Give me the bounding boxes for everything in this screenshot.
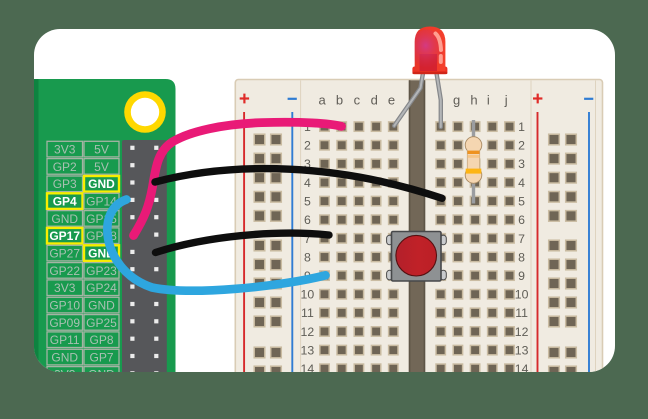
svg-text:GND: GND [88,298,115,312]
svg-text:1: 1 [518,120,525,134]
svg-text:GP22: GP22 [49,264,80,278]
svg-text:2: 2 [304,139,311,153]
svg-text:GP11: GP11 [50,333,80,347]
svg-text:5: 5 [518,195,525,209]
svg-text:10: 10 [515,288,529,302]
svg-text:i: i [487,93,490,108]
svg-text:GP2: GP2 [53,160,77,174]
svg-text:4: 4 [518,176,525,190]
svg-text:12: 12 [301,325,315,339]
svg-text:3: 3 [518,157,525,171]
svg-text:4: 4 [304,176,311,190]
svg-text:3V3: 3V3 [54,143,76,157]
svg-text:6: 6 [304,213,311,227]
svg-text:12: 12 [515,325,529,339]
svg-text:d: d [371,93,378,108]
svg-text:GP23: GP23 [86,264,117,278]
svg-text:2: 2 [518,139,525,153]
svg-text:13: 13 [515,344,529,358]
svg-text:GP8: GP8 [89,333,113,347]
svg-text:GP24: GP24 [86,281,117,295]
svg-text:GND: GND [88,177,115,191]
svg-text:9: 9 [518,269,525,283]
svg-text:GP7: GP7 [89,350,113,364]
svg-text:13: 13 [301,344,315,358]
svg-text:GP17: GP17 [49,229,80,243]
svg-text:c: c [354,93,361,108]
svg-text:g: g [453,93,460,108]
svg-text:GND: GND [51,212,78,226]
svg-text:8: 8 [304,250,311,264]
svg-text:h: h [470,93,477,108]
svg-text:5V: 5V [94,160,109,174]
svg-text:3V3: 3V3 [54,281,76,295]
svg-text:5: 5 [304,195,311,209]
svg-text:e: e [388,93,395,108]
svg-text:GP3: GP3 [53,177,77,191]
svg-text:GND: GND [51,350,78,364]
svg-text:GP27: GP27 [49,246,80,260]
svg-text:GP09: GP09 [49,316,80,330]
svg-text:5V: 5V [94,143,109,157]
svg-text:7: 7 [518,232,525,246]
svg-text:GP4: GP4 [53,194,77,208]
svg-text:8: 8 [518,250,525,264]
svg-text:10: 10 [301,288,315,302]
svg-text:GP10: GP10 [49,298,80,312]
svg-text:11: 11 [301,306,314,320]
svg-text:6: 6 [518,213,525,227]
svg-text:11: 11 [515,306,528,320]
svg-text:GP25: GP25 [86,316,117,330]
svg-text:a: a [318,93,326,108]
svg-text:j: j [504,93,508,108]
svg-text:b: b [336,93,343,108]
